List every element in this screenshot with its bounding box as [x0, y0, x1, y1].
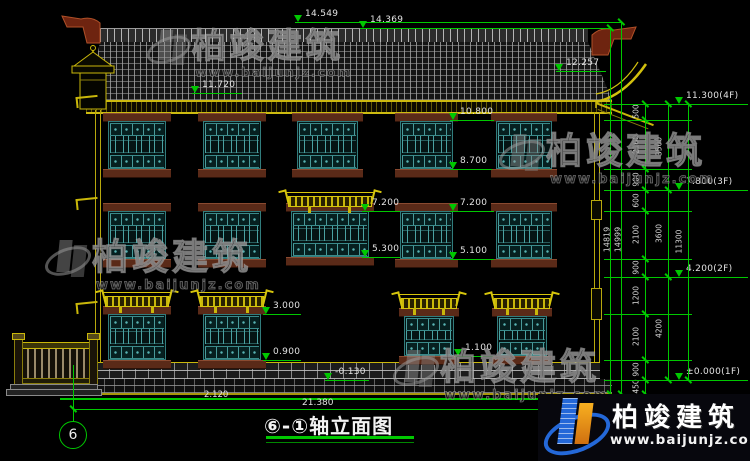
title-underline-2 — [266, 442, 414, 443]
level-flag-label: 7.800(3F) — [686, 177, 732, 187]
dim-line — [60, 398, 615, 400]
chain-dim-label: 4200 — [655, 313, 664, 343]
level-flag-label: 11.720 — [202, 80, 235, 90]
level-triangle-icon — [675, 270, 683, 277]
dim-line — [352, 22, 621, 23]
dim-line — [604, 360, 692, 361]
level-triangle-icon — [361, 250, 369, 257]
dim-line — [73, 365, 74, 422]
dim-line — [415, 28, 610, 29]
level-flag-label: 14.369 — [370, 15, 403, 25]
drawing-title: ⑥-①轴立面图 — [264, 410, 393, 439]
dim-line — [556, 71, 606, 72]
chain-dim-label: 900 — [632, 253, 641, 283]
dim-line — [295, 22, 353, 23]
level-flag-label: 1.100 — [465, 343, 492, 353]
level-flag-label: 8.700 — [460, 156, 487, 166]
level-flag-label: 14.549 — [305, 9, 338, 19]
overall-dim-label: 14819 — [603, 223, 612, 257]
overall-dim-label: 14999 — [614, 223, 623, 257]
level-flag-label: 0.900 — [273, 347, 300, 357]
dim-line — [668, 104, 669, 380]
chain-dim-label: 500 — [632, 97, 641, 127]
level-flag-label: 5.100 — [460, 246, 487, 256]
level-triangle-icon — [294, 15, 302, 22]
brand-logo-block: 柏竣建筑 www.baijunjz.com — [538, 394, 750, 461]
level-triangle-icon — [191, 86, 199, 93]
level-flag-label: ±0.000(1F) — [686, 367, 740, 377]
level-triangle-icon — [675, 183, 683, 190]
dim-line — [325, 380, 369, 381]
total-width-dim: 21.380 — [302, 398, 334, 408]
chain-dim-label: 2100 — [632, 322, 641, 352]
dim-line — [450, 169, 492, 170]
dim-line — [362, 211, 400, 212]
dim-line — [604, 259, 692, 260]
dim-line — [455, 356, 493, 357]
porch-dim: 2.120 — [204, 390, 228, 400]
level-triangle-icon — [449, 204, 457, 211]
dim-line — [362, 257, 400, 258]
title-underline — [266, 436, 414, 439]
dim-line — [263, 360, 301, 361]
level-flag-label: -0.130 — [335, 367, 366, 377]
dim-line — [604, 104, 692, 105]
level-triangle-icon — [262, 353, 270, 360]
dim-line — [360, 28, 415, 29]
level-triangle-icon — [262, 307, 270, 314]
level-triangle-icon — [449, 162, 457, 169]
dim-line — [604, 190, 692, 191]
chain-dim-label: 3500 — [655, 132, 664, 162]
axis-bubble-6: 6 — [59, 421, 87, 449]
level-flag-label: 5.300 — [372, 244, 399, 254]
brand-name: 柏竣建筑 — [612, 397, 740, 434]
dim-line — [645, 104, 646, 394]
dim-line — [192, 93, 242, 94]
chain-dim-label: 11300 — [675, 227, 684, 257]
level-flag-label: 11.300(4F) — [686, 91, 738, 101]
dim-line — [604, 120, 692, 121]
level-flag-label: 7.200 — [460, 198, 487, 208]
level-flag-label: 4.200(2F) — [686, 264, 732, 274]
dim-line — [604, 277, 692, 278]
level-flag-label: 3.000 — [273, 301, 300, 311]
chain-dim-label: 1200 — [632, 280, 641, 310]
dimension-annotation-layer: 14.54914.36912.25711.72010.8008.7007.200… — [0, 0, 750, 461]
chain-dim-label: 2100 — [632, 220, 641, 250]
brand-url: www.baijunjz.com — [610, 432, 750, 448]
level-triangle-icon — [675, 97, 683, 104]
level-triangle-icon — [675, 373, 683, 380]
dim-line — [604, 169, 692, 170]
dim-line — [621, 22, 622, 394]
dim-line — [604, 314, 692, 315]
level-triangle-icon — [361, 204, 369, 211]
dim-line — [688, 104, 689, 380]
level-flag-label: 10.800 — [460, 107, 493, 117]
level-flag-label: 12.257 — [566, 58, 599, 68]
dim-line — [263, 314, 301, 315]
level-triangle-icon — [454, 349, 462, 356]
elevation-drawing-canvas: 14.54914.36912.25711.72010.8008.7007.200… — [0, 0, 750, 461]
dim-line — [450, 120, 494, 121]
dim-line — [604, 211, 692, 212]
dim-line — [450, 211, 494, 212]
level-triangle-icon — [555, 64, 563, 71]
chain-dim-label: 3600 — [655, 218, 664, 248]
dim-line — [604, 380, 692, 381]
level-triangle-icon — [324, 373, 332, 380]
level-triangle-icon — [449, 113, 457, 120]
level-triangle-icon — [449, 252, 457, 259]
level-flag-label: 7.200 — [372, 198, 399, 208]
chain-dim-label: 2100 — [632, 129, 641, 159]
dim-line — [450, 259, 494, 260]
